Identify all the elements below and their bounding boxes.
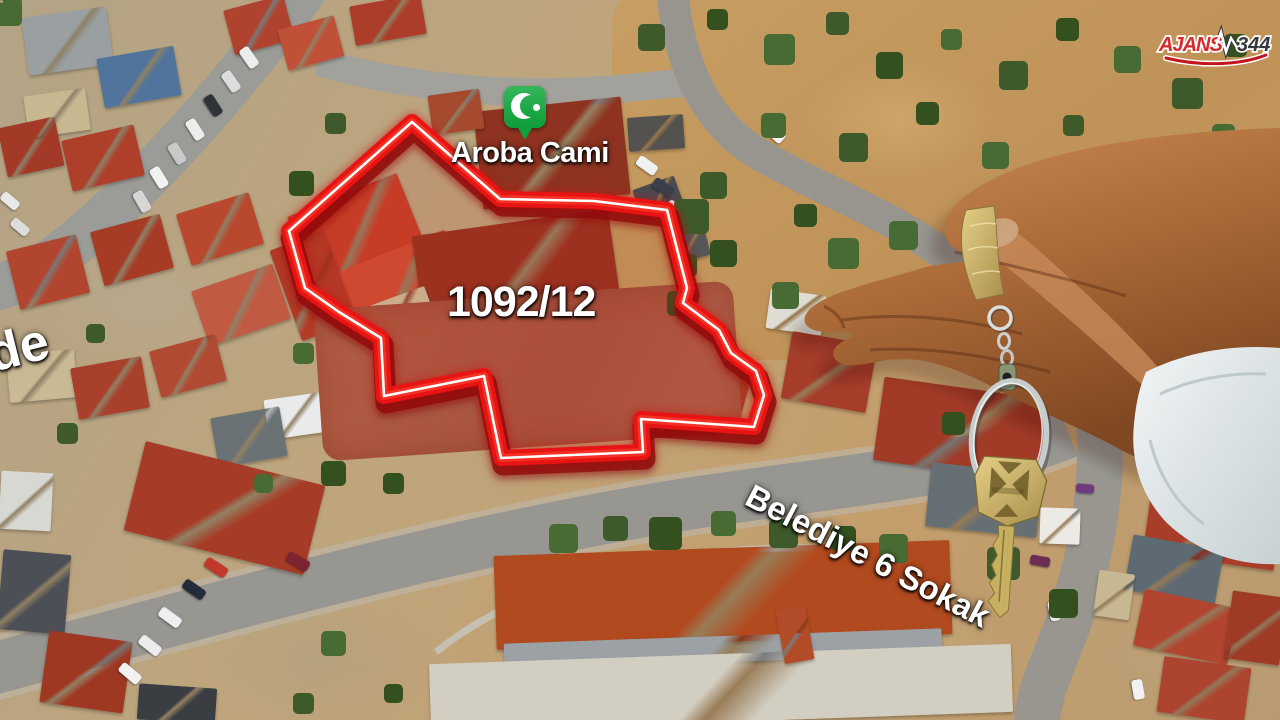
building-roof [23, 88, 90, 138]
building-roof [263, 392, 326, 440]
parked-car [202, 93, 223, 117]
building-roof [39, 631, 132, 714]
parked-car [132, 189, 153, 214]
building-roof [21, 6, 113, 75]
poi-label: Aroba Cami [451, 137, 609, 170]
building-roof [429, 644, 1013, 720]
parked-car [167, 141, 188, 165]
building-roof [137, 683, 217, 720]
street-name-partial-label: de [0, 312, 55, 385]
building-roof [0, 117, 65, 178]
building-roof [70, 356, 150, 420]
building-roof [1157, 656, 1252, 720]
building-roof [223, 0, 295, 55]
building-roof [90, 214, 174, 287]
building-roof [210, 406, 288, 467]
building-roof [504, 628, 943, 669]
hand-holding-keys [780, 90, 1280, 630]
scattered-trees [0, 0, 3, 3]
parked-car [157, 606, 183, 629]
parked-car [285, 551, 311, 573]
building-roof [427, 89, 484, 136]
building-roof [0, 471, 53, 532]
building-roof [61, 124, 145, 191]
brand-344: 344 [1237, 34, 1270, 56]
building-roof [149, 334, 227, 398]
parked-car [184, 117, 205, 141]
building-roof [287, 173, 427, 293]
parked-car [9, 217, 31, 238]
mosque-marker-pin [504, 86, 546, 128]
building-roof [349, 0, 427, 46]
brand-watermark: AJANS 344 [1156, 24, 1278, 72]
parked-car [149, 165, 170, 189]
parked-car [137, 634, 163, 657]
building-roof [191, 264, 291, 347]
parked-car [0, 191, 21, 212]
parked-car [117, 662, 142, 686]
key-icon [965, 456, 1048, 621]
parked-car [220, 69, 242, 93]
real-estate-aerial-promo: Aroba Cami 1092/12 Belediye 6 Sokak de [0, 0, 1280, 720]
building-roof [96, 46, 181, 109]
building-roof [0, 549, 71, 635]
orchard-trees [620, 0, 623, 3]
crescent-star-dot [533, 104, 540, 111]
building-roof [176, 192, 264, 266]
building-roof [278, 15, 345, 71]
parked-car [181, 578, 207, 601]
parked-car [1131, 679, 1145, 701]
building-roof [6, 234, 90, 310]
parcel-number-label: 1092/12 [447, 278, 595, 327]
parked-car [238, 45, 260, 69]
parked-car [203, 556, 229, 578]
brand-ajans: AJANS [1158, 34, 1223, 56]
building-roof [124, 441, 326, 575]
